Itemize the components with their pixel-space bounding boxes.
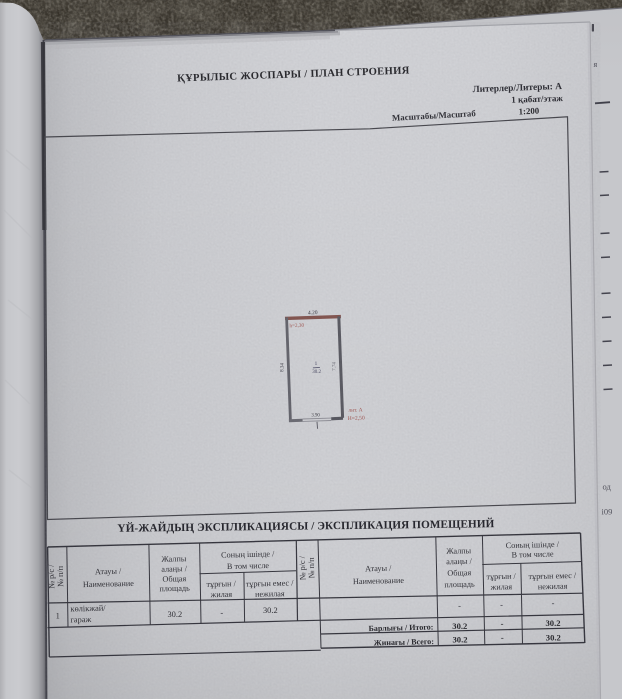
svg-text:і09: і09 xyxy=(602,507,613,517)
svg-text:од: од xyxy=(603,482,612,492)
svg-text:я: я xyxy=(594,60,598,69)
